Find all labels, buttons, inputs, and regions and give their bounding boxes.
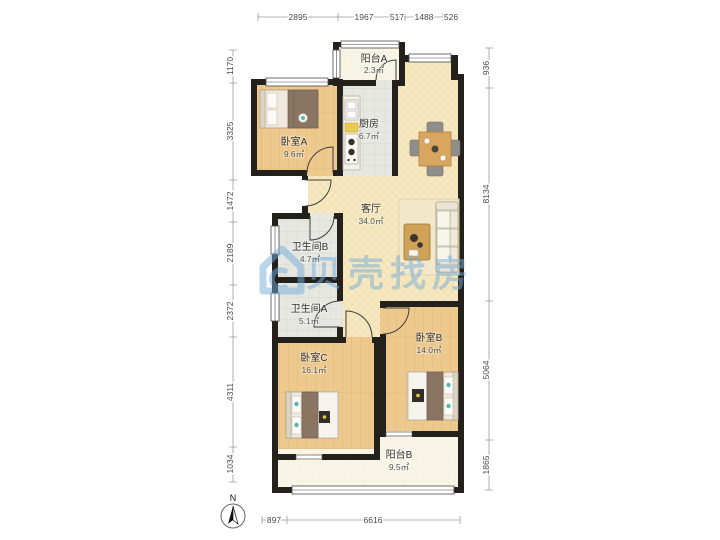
window	[271, 293, 279, 321]
kitchen-counter	[343, 96, 360, 170]
room-label-balcony-b: 阳台B 9.5㎡	[386, 448, 413, 472]
room-label-bedroom-a: 卧室A 9.6㎡	[281, 135, 308, 159]
svg-text:1034: 1034	[225, 454, 235, 473]
wall-segment	[399, 42, 405, 86]
wall-segment	[343, 337, 346, 343]
wall-segment	[374, 431, 386, 437]
svg-text:5064: 5064	[481, 360, 491, 379]
wall-segment	[380, 301, 386, 308]
svg-text:14.0㎡: 14.0㎡	[416, 345, 442, 355]
svg-text:3325: 3325	[225, 121, 235, 140]
svg-text:1488: 1488	[415, 12, 434, 22]
svg-text:2.3㎡: 2.3㎡	[364, 65, 385, 75]
wall-segment	[251, 170, 307, 176]
svg-text:936: 936	[481, 61, 491, 75]
svg-text:9.6㎡: 9.6㎡	[284, 149, 305, 159]
wall-segment	[337, 79, 343, 176]
svg-text:5.1㎡: 5.1㎡	[299, 316, 320, 326]
dimension-top: 2895 1967 517 1488 526	[258, 12, 458, 22]
svg-text:阳台B: 阳台B	[386, 448, 413, 461]
floorplan-page: 贝壳找房 阳台A 2.3㎡ 厨房 6.7㎡ 卧室A 9.6㎡ 客厅 34.0㎡ …	[0, 0, 720, 540]
room-label-bedroom-b: 卧室B 14.0㎡	[416, 331, 443, 355]
wall-segment	[272, 337, 343, 343]
svg-text:2895: 2895	[289, 12, 308, 22]
watermark-text: 贝壳找房	[306, 253, 474, 294]
wall-segment	[302, 176, 308, 180]
svg-text:1472: 1472	[225, 191, 235, 210]
wall-segment	[392, 80, 398, 176]
svg-text:2189: 2189	[225, 243, 235, 262]
wall-segment	[322, 454, 380, 460]
wall-segment	[412, 431, 464, 437]
window	[333, 50, 340, 78]
room-label-living: 客厅 34.0㎡	[358, 202, 384, 226]
window	[292, 486, 454, 494]
wall-segment	[333, 170, 343, 176]
svg-text:526: 526	[444, 12, 458, 22]
svg-text:16.1㎡: 16.1㎡	[301, 365, 327, 375]
room-label-balcony-a: 阳台A 2.3㎡	[361, 52, 388, 75]
bed-bedroom-b	[408, 372, 458, 420]
svg-text:阳台A: 阳台A	[361, 52, 388, 65]
dimension-left: 1170 3325 1472 2189 2372 4311 1034	[225, 50, 237, 482]
wall-segment	[272, 454, 296, 460]
svg-text:9.5㎡: 9.5㎡	[389, 462, 410, 472]
svg-text:卧室A: 卧室A	[281, 135, 308, 148]
svg-text:1967: 1967	[355, 12, 374, 22]
svg-text:客厅: 客厅	[361, 202, 381, 215]
room-label-kitchen: 厨房 6.7㎡	[359, 117, 380, 141]
svg-text:4.7㎡: 4.7㎡	[300, 254, 321, 264]
svg-text:2372: 2372	[225, 301, 235, 320]
svg-text:卫生间B: 卫生间B	[292, 240, 329, 253]
window	[409, 54, 451, 62]
room-label-bedroom-c: 卧室C 16.1㎡	[300, 351, 327, 375]
svg-text:4311: 4311	[225, 383, 235, 402]
wall-segment	[251, 79, 257, 176]
svg-text:卫生间A: 卫生间A	[291, 302, 328, 315]
svg-text:6.7㎡: 6.7㎡	[359, 131, 380, 141]
svg-text:34.0㎡: 34.0㎡	[358, 216, 384, 226]
dimension-bottom: 897 6616	[262, 515, 460, 525]
compass: N	[221, 493, 245, 528]
svg-text:1865: 1865	[481, 455, 491, 474]
svg-text:厨房: 厨房	[359, 117, 379, 130]
svg-text:卧室B: 卧室B	[416, 331, 443, 344]
window	[341, 41, 399, 48]
bed-bedroom-c	[286, 392, 338, 438]
bed-bedroom-a	[260, 90, 318, 128]
window	[266, 78, 328, 86]
svg-text:8134: 8134	[481, 184, 491, 203]
compass-north-label: N	[230, 493, 237, 503]
sliding-door	[386, 432, 412, 436]
wall-segment	[374, 337, 380, 460]
svg-text:6616: 6616	[364, 515, 383, 525]
wall-segment	[380, 301, 464, 307]
dimension-right: 936 8134 5064 1865	[481, 48, 493, 490]
wall-segment	[380, 334, 386, 437]
floor-plan-canvas: 贝壳找房 阳台A 2.3㎡ 厨房 6.7㎡ 卧室A 9.6㎡ 客厅 34.0㎡ …	[0, 0, 720, 540]
sliding-door	[296, 455, 322, 459]
svg-text:517: 517	[390, 12, 404, 22]
svg-text:897: 897	[267, 515, 281, 525]
svg-text:卧室C: 卧室C	[300, 351, 327, 364]
svg-text:1170: 1170	[225, 57, 235, 76]
